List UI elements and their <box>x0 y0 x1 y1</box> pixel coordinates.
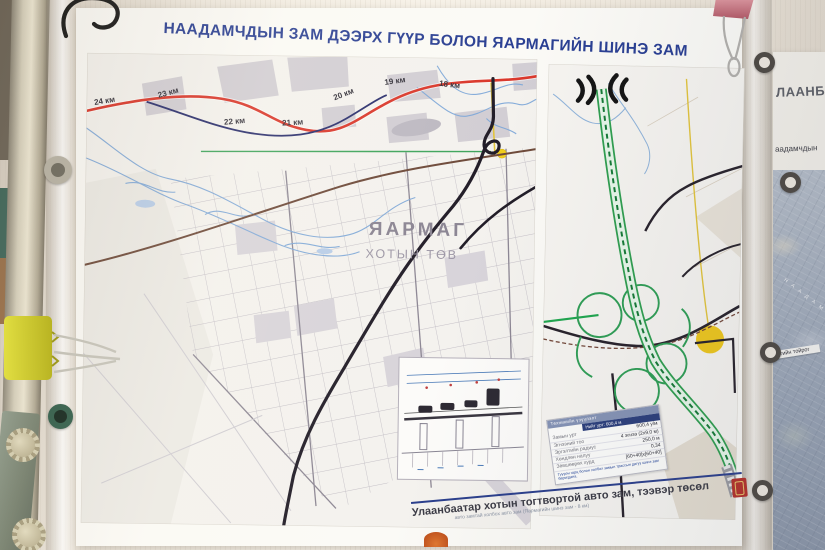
bridge-cross-section-inset <box>397 357 529 481</box>
district-sublabel: ХОТЫН ТӨВ <box>365 247 458 262</box>
photo-scene: НААДАМЧДЫН ЗАМ ДЭЭРХ ГҮҮР БОЛОН ЯАРМАГИЙ… <box>0 0 825 550</box>
km-label: 22 км <box>224 116 246 127</box>
binder-clip-black-icon <box>58 0 148 39</box>
satellite-road-label: Н А А Д А М <box>782 277 825 313</box>
grommet-eyelet-icon <box>752 480 773 501</box>
poster-right-title: ЛААНБ <box>776 83 825 100</box>
grommet-eyelet-icon <box>760 342 781 363</box>
binder-clip-pink-icon <box>700 0 775 93</box>
poster-right: ЛААНБ аадамчдын Н А А Д А М гийн тойрог <box>772 52 825 550</box>
grommet-eyelet-icon <box>44 156 72 184</box>
left-map: 24 км 23 км 22 км 21 км 20 км 19 км 18 к… <box>81 53 538 529</box>
poster-right-subtitle: аадамчдын <box>775 143 818 153</box>
satellite-map: Н А А Д А М гийн тойрог <box>773 170 825 550</box>
grommet-eyelet-icon <box>780 172 801 193</box>
binder-clip-yellow-icon <box>2 302 132 402</box>
poster-main: НААДАМЧДЫН ЗАМ ДЭЭРХ ГҮҮР БОЛОН ЯАРМАГИЙ… <box>76 8 742 546</box>
grommet-eyelet-icon <box>48 404 73 429</box>
clamp-knob-icon <box>12 518 46 550</box>
clamp-knob-icon <box>6 428 40 462</box>
tarp-fold <box>46 0 76 550</box>
km-label: 21 км <box>282 117 304 127</box>
project-logo-icon <box>424 532 448 547</box>
district-label: ЯАРМАГ <box>369 219 467 241</box>
ulaanbaatar-emblem-icon <box>731 478 748 498</box>
